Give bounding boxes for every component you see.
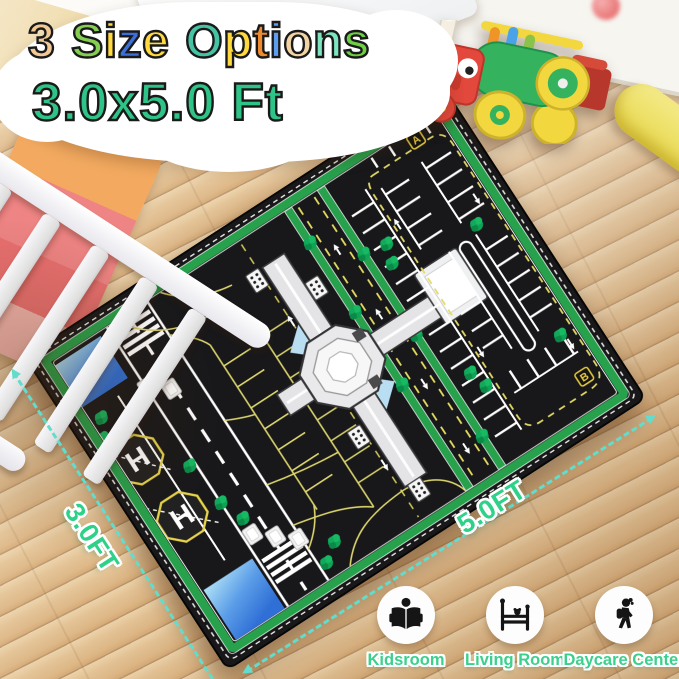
reading-child-icon	[386, 595, 426, 635]
size-options-sticker: 3 Size Options 3.0x5.0 Ft	[4, 2, 450, 162]
walking-child-icon	[604, 595, 644, 635]
bed-icon	[495, 595, 535, 635]
room-label: Daycare Center	[563, 651, 679, 670]
crib-slat	[82, 307, 208, 486]
crib-slat	[33, 275, 159, 454]
room-icons: Kidsroom Living Room	[356, 586, 674, 670]
size-options-title: 3 Size Options	[28, 18, 370, 66]
size-value: 3.0x5.0 Ft	[32, 76, 284, 129]
room-label: Living Room	[465, 651, 565, 670]
product-photo: H H	[0, 0, 679, 679]
room-living-room: Living Room	[465, 586, 565, 670]
room-daycare-center: Daycare Center	[574, 586, 674, 670]
room-kidsroom: Kidsroom	[356, 586, 456, 670]
room-label: Kidsroom	[367, 651, 444, 670]
